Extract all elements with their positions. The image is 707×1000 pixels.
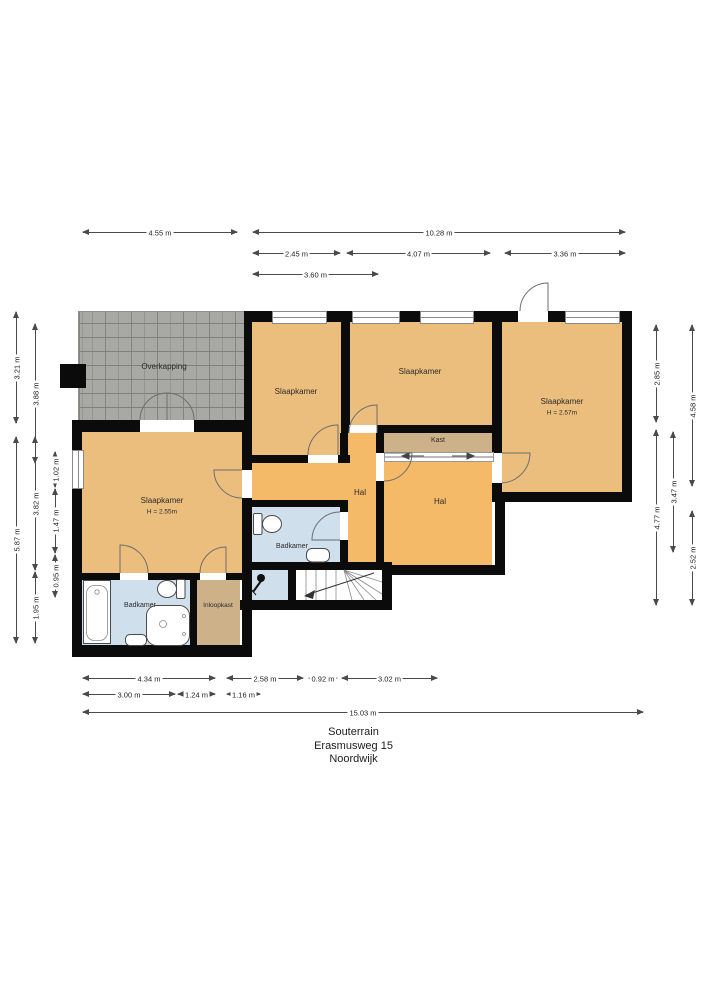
room-hal-east: [384, 460, 492, 565]
door-gap-badkamer-mid: [340, 512, 348, 540]
wall-bottom-left: [72, 645, 252, 657]
room-hal-west-strip: [252, 463, 348, 500]
dimension-line: 1.95 m: [35, 572, 36, 643]
dimension-line: 4.07 m: [347, 253, 490, 254]
dimension-label: 1.24 m: [183, 690, 210, 700]
dimension-label: 2.58 m: [252, 674, 279, 684]
wall-left-upper: [244, 322, 252, 420]
dimension-line: 1.47 m: [55, 489, 56, 553]
dimension-line: 4.55 m: [83, 232, 237, 233]
dimension-label: 3.00 m: [116, 690, 143, 700]
label-slaapkamer-main-height: H = 2.55m: [147, 509, 177, 516]
label-slaapkamer-right-height: H = 2.57m: [547, 410, 577, 417]
dimension-label: 15.03 m: [347, 708, 378, 718]
wall-bed-c-bottom: [492, 492, 632, 502]
dimension-line: 1.16 m: [227, 694, 260, 695]
label-badkamer-mid: Badkamer: [276, 543, 308, 551]
wall-mid-column: [242, 432, 252, 657]
wall-hal-east-bottom: [382, 565, 505, 575]
label-slaapkamer-top-left: Slaapkamer: [275, 387, 318, 397]
dimension-line: 3.60 m: [253, 274, 378, 275]
dimension-label: 0.95 m: [51, 563, 61, 590]
dimension-line: 15.03 m: [83, 712, 643, 713]
label-inloopkast: Inloopkast: [203, 602, 233, 610]
dimension-label: 3.82 m: [31, 490, 41, 517]
dimension-label: 3.36 m: [552, 249, 579, 259]
dimension-line: 3.02 m: [342, 678, 437, 679]
dimension-label: 3.02 m: [376, 674, 403, 684]
dimension-label: 1.02 m: [51, 456, 61, 483]
label-badkamer-sw: Badkamer: [124, 602, 156, 610]
dimension-label: 2.45 m: [283, 249, 310, 259]
label-slaapkamer-right: Slaapkamer: [541, 397, 584, 407]
door-gap-bed-main: [242, 470, 252, 498]
plan-caption: Souterrain Erasmusweg 15 Noordwijk: [0, 726, 707, 767]
door-gap-bed-a: [308, 455, 338, 463]
room-stairwell: [296, 570, 382, 600]
dimension-line: 4.77 m: [656, 430, 657, 605]
dimension-label: 5.87 m: [12, 527, 22, 554]
dimension-label: 4.77 m: [652, 504, 662, 531]
dimension-line: 2.45 m: [253, 253, 340, 254]
window-bed-main: [72, 450, 84, 489]
caption-floor-name: Souterrain: [0, 726, 707, 740]
floorplan-sheet: Overkapping Slaapkamer Slaapkamer Slaapk…: [0, 0, 707, 1000]
dimension-label: 3.60 m: [302, 270, 329, 280]
door-gap-hal-east: [376, 453, 384, 481]
caption-city: Noordwijk: [0, 753, 707, 767]
dimension-label: 2.85 m: [652, 360, 662, 387]
wall-bed-a-b: [341, 322, 350, 425]
dimension-line: 1.02 m: [55, 452, 56, 487]
room-badkamer-sw: [82, 580, 190, 645]
wall-badkamer-inloopkast: [190, 580, 197, 645]
dimension-line: 3.21 m: [16, 312, 17, 423]
dimension-line: 4.58 m: [692, 325, 693, 486]
dimension-line: 3.36 m: [505, 253, 625, 254]
dimension-line: 3.00 m: [83, 694, 175, 695]
dimension-line: 2.85 m: [656, 325, 657, 422]
wall-stairs-top: [244, 562, 392, 570]
dimension-label: 10.28 m: [423, 228, 454, 238]
sliding-door-kast: [384, 452, 494, 462]
label-kast: Kast: [431, 437, 445, 445]
terrace-pillar: [60, 364, 86, 388]
dimension-label: 3.88 m: [31, 380, 41, 407]
dimension-line: 2.58 m: [227, 678, 303, 679]
dimension-label: 1.95 m: [31, 594, 41, 621]
wall-stairs-bottom: [240, 600, 392, 610]
window-bed-a: [272, 311, 327, 324]
label-slaapkamer-main: Slaapkamer: [141, 496, 184, 506]
room-shower-nook: [252, 570, 288, 600]
wall-badkamer-mid-right-upper: [340, 433, 348, 463]
dimension-line: 1.24 m: [178, 694, 215, 695]
door-gap-badkamer-sw: [120, 573, 148, 580]
door-gap-inloopkast: [200, 573, 226, 580]
window-bed-b-2: [420, 311, 474, 324]
room-badkamer-mid: [252, 507, 340, 562]
door-gap-terrace: [140, 420, 194, 432]
window-bed-c: [565, 311, 620, 324]
wall-right: [622, 311, 632, 502]
wall-step-right: [495, 502, 505, 575]
dimension-label: 1.16 m: [230, 690, 257, 700]
dimension-label: 4.34 m: [136, 674, 163, 684]
dimension-line: 3.82 m: [35, 437, 36, 570]
dimension-label: 4.58 m: [688, 392, 698, 419]
label-overkapping: Overkapping: [141, 362, 186, 372]
room-inloopkast: [197, 580, 240, 645]
dimension-label: 0.92 m: [310, 674, 337, 684]
door-arc-entry: [520, 283, 548, 311]
door-gap-bed-b: [349, 425, 377, 433]
dimension-label: 4.55 m: [147, 228, 174, 238]
dimension-label: 1.47 m: [51, 508, 61, 535]
dimension-line: 0.92 m: [309, 678, 337, 679]
window-bed-b-1: [352, 311, 400, 324]
label-hal-east: Hal: [434, 497, 446, 507]
dimension-line: 5.87 m: [16, 437, 17, 643]
label-hal-west: Hal: [354, 488, 366, 498]
dimension-line: 3.47 m: [673, 432, 674, 552]
wall-nook-right: [288, 570, 296, 600]
dimension-label: 3.47 m: [669, 479, 679, 506]
dimension-line: 10.28 m: [253, 232, 625, 233]
dimension-label: 4.07 m: [405, 249, 432, 259]
dimension-line: 0.95 m: [55, 555, 56, 597]
dimension-line: 2.52 m: [692, 511, 693, 605]
dimension-label: 3.21 m: [12, 354, 22, 381]
wall-halstrip-bottom: [242, 500, 348, 507]
dimension-label: 2.52 m: [688, 545, 698, 572]
label-slaapkamer-top-mid: Slaapkamer: [399, 367, 442, 377]
room-slaapkamer-right: [502, 322, 622, 492]
door-gap-entry: [518, 311, 548, 322]
caption-street: Erasmusweg 15: [0, 740, 707, 754]
dimension-line: 4.34 m: [83, 678, 215, 679]
wall-step-mid: [382, 575, 392, 610]
